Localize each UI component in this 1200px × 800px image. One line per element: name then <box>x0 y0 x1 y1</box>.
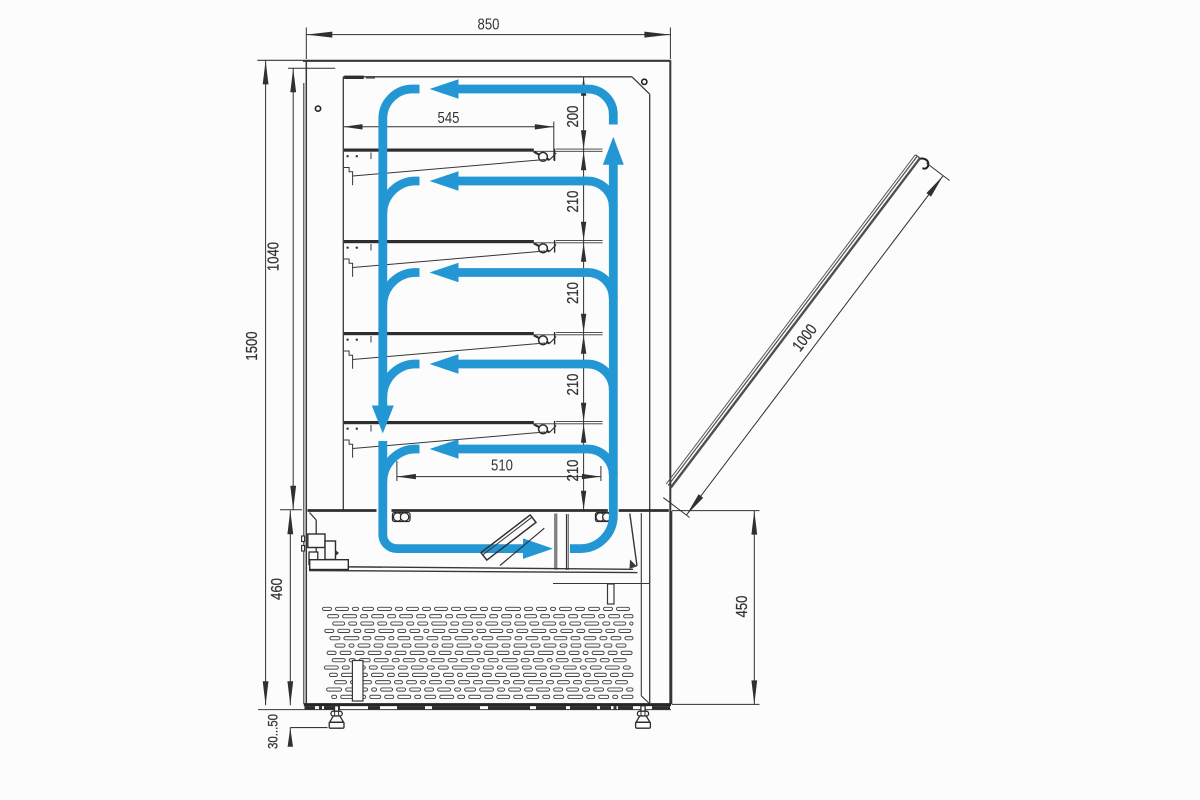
svg-text:30...50: 30...50 <box>264 714 280 749</box>
svg-text:850: 850 <box>478 16 500 33</box>
svg-text:210: 210 <box>565 191 582 213</box>
svg-text:200: 200 <box>565 106 582 128</box>
svg-text:210: 210 <box>565 282 582 304</box>
svg-text:210: 210 <box>565 374 582 396</box>
svg-text:1040: 1040 <box>265 242 282 271</box>
svg-text:450: 450 <box>734 596 751 618</box>
svg-text:510: 510 <box>491 457 513 474</box>
svg-text:545: 545 <box>438 110 460 127</box>
svg-text:1500: 1500 <box>244 331 261 360</box>
svg-text:210: 210 <box>565 460 582 482</box>
svg-text:460: 460 <box>269 578 286 600</box>
